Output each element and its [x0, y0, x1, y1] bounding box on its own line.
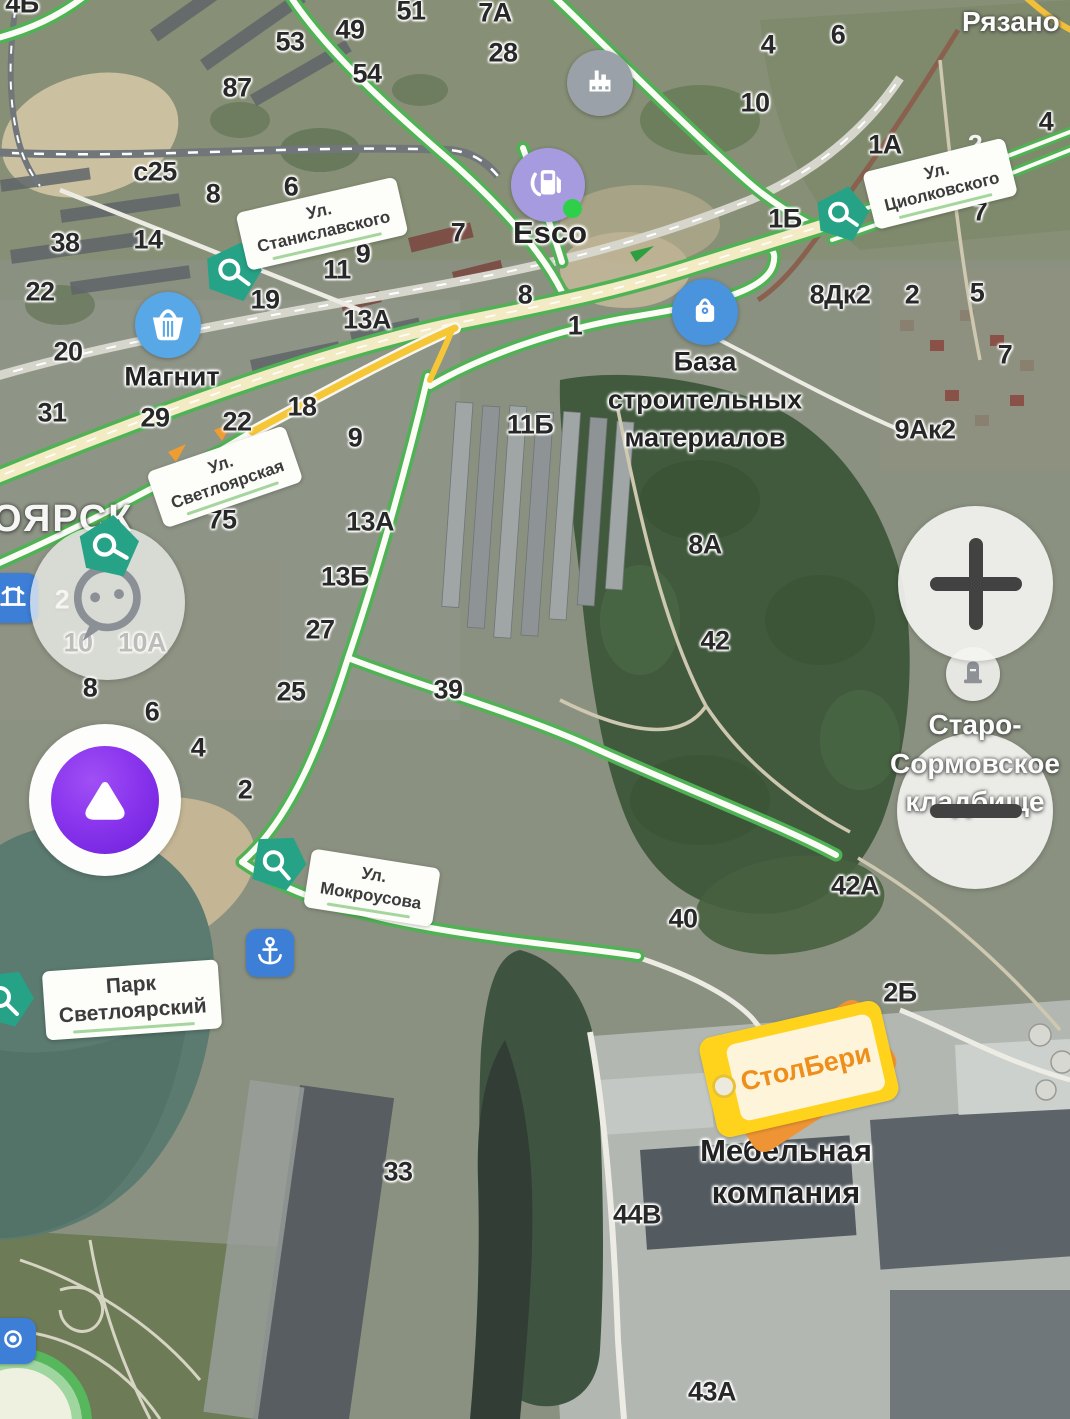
street-label[interactable]: Ул.Светлоярская: [146, 425, 304, 529]
street-label[interactable]: Ул.Циолковского: [862, 138, 1018, 231]
street-label[interactable]: Ул.Станиславского: [235, 177, 408, 272]
stolberi-tag[interactable]: СтолБери: [700, 1008, 910, 1148]
search-pin-icon[interactable]: [244, 833, 310, 899]
stolberi-brand: СтолБери: [738, 1037, 874, 1097]
street-label[interactable]: ПаркСветлоярский: [42, 959, 222, 1040]
price-tag-icon: СтолБери: [697, 998, 901, 1139]
street-label[interactable]: Ул.Мокроусова: [303, 848, 441, 927]
minus-icon: [930, 804, 1022, 818]
search-pin-icon[interactable]: [0, 970, 36, 1034]
alice-button[interactable]: [29, 724, 181, 876]
alice-icon: [51, 746, 159, 854]
plus-icon: [930, 538, 1022, 630]
search-pin-icon[interactable]: [68, 507, 151, 590]
zoom-in-button[interactable]: [898, 506, 1053, 661]
map-screen: 4Б875349517А285410461А4с258697111913А381…: [0, 0, 1070, 1419]
tombstone-icon: [958, 657, 988, 692]
